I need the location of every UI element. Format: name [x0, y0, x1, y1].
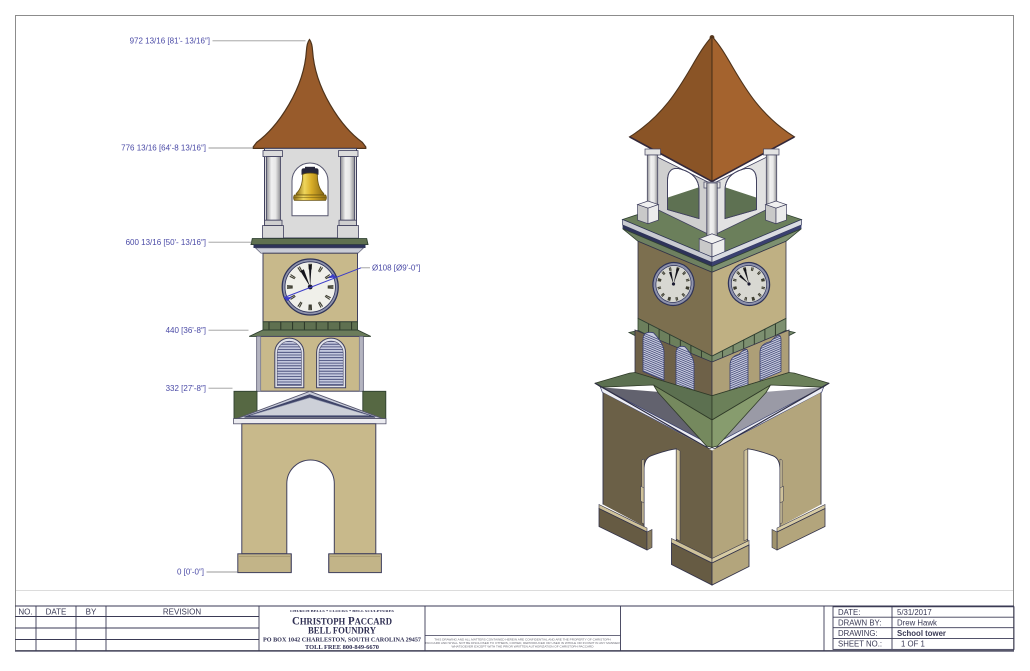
svg-text:School tower: School tower — [897, 629, 946, 638]
svg-text:DATE:: DATE: — [838, 608, 860, 617]
svg-text:600 13/16 [50'- 13/16″]: 600 13/16 [50'- 13/16″] — [126, 238, 206, 247]
svg-text:DRAWING:: DRAWING: — [838, 629, 878, 638]
svg-text:5/31/2017: 5/31/2017 — [897, 608, 932, 617]
svg-text:WHATSOEVER EXCEPT WITH THE PRI: WHATSOEVER EXCEPT WITH THE PRIOR WRITTEN… — [452, 645, 595, 649]
svg-text:PO BOX 1042 CHARLESTON, SOUTH: PO BOX 1042 CHARLESTON, SOUTH CAROLINA 2… — [263, 637, 422, 644]
svg-text:Drew Hawk: Drew Hawk — [897, 618, 937, 627]
svg-text:776 13/16 [64'-8 13/16″]: 776 13/16 [64'-8 13/16″] — [121, 143, 206, 152]
svg-text:DATE: DATE — [46, 607, 67, 616]
svg-text:REVISION: REVISION — [163, 607, 201, 616]
svg-text:Ø108 [Ø9'-0″]: Ø108 [Ø9'-0″] — [372, 263, 420, 272]
svg-text:CHURCH BELLS * CLOCKS * BELL S: CHURCH BELLS * CLOCKS * BELL SCULPTURES — [290, 609, 394, 613]
svg-text:332 [27'-8″]: 332 [27'-8″] — [166, 384, 206, 393]
svg-text:440 [36'-8″]: 440 [36'-8″] — [166, 326, 206, 335]
svg-text:TOLL FREE 800-849-6670: TOLL FREE 800-849-6670 — [305, 644, 380, 651]
svg-text:1 OF 1: 1 OF 1 — [901, 640, 925, 649]
svg-text:0 [0'-0″]: 0 [0'-0″] — [177, 567, 204, 576]
svg-text:972 13/16 [81'- 13/16″]: 972 13/16 [81'- 13/16″] — [130, 36, 210, 45]
svg-text:BY: BY — [86, 607, 97, 616]
svg-text:DRAWN BY:: DRAWN BY: — [838, 618, 881, 627]
svg-text:NO.: NO. — [18, 607, 32, 616]
svg-text:BELL FOUNDRY: BELL FOUNDRY — [308, 627, 376, 637]
svg-text:SHEET NO.:: SHEET NO.: — [838, 640, 882, 649]
